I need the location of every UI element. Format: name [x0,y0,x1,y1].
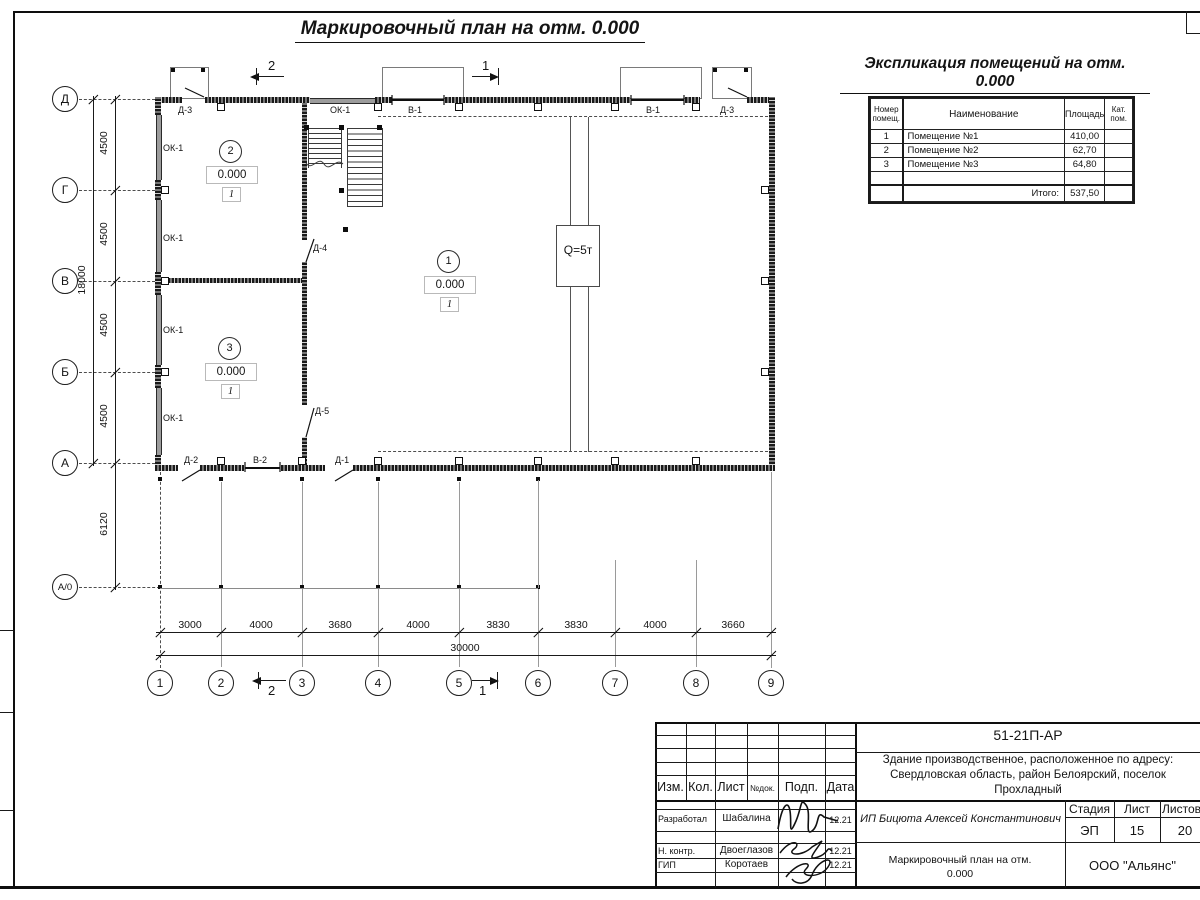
dim-line-v [115,96,116,590]
room-num: 3 [871,158,903,172]
window-label: ОК-1 [163,143,183,153]
room-area: 62,70 [1065,144,1105,158]
tb-line [655,722,657,888]
post-mark [300,477,304,481]
porch-post [201,68,205,72]
axis-circle-3: 3 [289,670,315,696]
plan-title: Маркировочный план на отм. 0.000 [270,18,670,43]
room-name: Помещение №2 [903,144,1065,158]
wall-bottom [353,465,775,471]
column-mark [343,227,348,232]
window-ok1 [156,200,162,272]
room-category-2: 1 [222,187,241,202]
sheet-label: Лист [1114,802,1160,816]
post-mark [457,477,461,481]
plan-title-text: Маркировочный план на отм. 0.000 [295,18,645,43]
dim-value: 6120 [98,502,110,546]
pilaster [611,457,619,465]
porch-post [713,68,717,72]
axis-circle-2: 2 [208,670,234,696]
client-name: ИП Бицюта Алексей Константинович [858,813,1063,825]
table-row: 1 Помещение №1 410,00 [871,130,1133,144]
stair-post [304,125,309,130]
door-label: Д-5 [315,406,329,416]
explication-title: Экспликация помещений на отм. 0.000 [840,55,1150,94]
dim-line-total-h [156,655,776,656]
signature-icon [772,833,846,887]
section-line [472,680,494,681]
frame-left-tick [0,712,13,713]
room-elevation-2: 0.000 [206,166,258,184]
signer-name: Коротаев [715,859,778,870]
axis-ext-line [771,472,772,668]
dim-value: 4000 [393,619,443,631]
col-header-area: Площадь [1065,99,1105,130]
table-row-empty [871,172,1133,185]
tb-col-list: Лист [715,780,747,794]
pilaster [534,103,542,111]
signer-name: Шабалина [715,813,778,824]
room-category-3: 1 [221,384,240,399]
tb-col-kol: Кол. [686,780,715,794]
axis-circle-8: 8 [683,670,709,696]
frame-corner-stamp [1186,11,1187,33]
section-arrow-icon [250,73,259,81]
dim-value: 4500 [98,121,110,165]
axis-line [79,587,160,588]
wall-interior-vertical [302,262,307,405]
canopy-edge [538,480,539,588]
axis-circle-a0: А/0 [52,574,78,600]
axis-circle-6: 6 [525,670,551,696]
door-label: Д-2 [184,455,198,465]
window-ok1 [156,295,162,365]
gate-v1-line [631,99,684,101]
stage-label: Стадия [1065,802,1114,816]
drawing-title: Маркировочный план на отм. 0.000 [875,853,1045,881]
axis-circle-a: А [52,450,78,476]
dim-value: 3830 [551,619,601,631]
axis-ext-line [378,482,379,667]
room-elevation-3: 0.000 [205,363,257,381]
porch-post [171,68,175,72]
dim-total: 18000 [76,258,88,302]
room-marker-2: 2 [219,140,242,163]
door-label: Д-3 [720,105,734,115]
wall-left [155,97,161,115]
sheets-value: 20 [1160,823,1200,838]
pilaster [374,457,382,465]
pilaster [611,103,619,111]
sheets-label: Листов [1162,802,1200,816]
frame-left [13,11,15,888]
post-mark [158,477,162,481]
window-ok1 [156,388,162,455]
col-header-name: Наименование [903,99,1065,130]
ramp-outline [382,67,464,99]
wall-bottom [200,465,244,471]
table-row: 3 Помещение №3 64,80 [871,158,1133,172]
wall-bottom [281,465,325,471]
dim-line-total-v [93,96,94,466]
pilaster [761,368,769,376]
tb-line [856,842,1200,843]
axis-circle-4: 4 [365,670,391,696]
room-name: Помещение №3 [903,158,1065,172]
window-label: ОК-1 [163,325,183,335]
post-mark [376,477,380,481]
dim-total: 30000 [440,642,490,654]
dim-value: 4500 [98,212,110,256]
blueprint-sheet: Маркировочный план на отм. 0.000 Эксплик… [0,0,1200,900]
room-num: 1 [871,130,903,144]
axis-circle-9: 9 [758,670,784,696]
pilaster [692,103,700,111]
frame-corner-stamp [1186,33,1200,34]
door-label: Д-3 [178,105,192,115]
axis-ext-line [615,560,616,667]
signer-name: Двоеглазов [715,845,778,856]
tb-line [655,722,1200,724]
pilaster [217,103,225,111]
stage-value: ЭП [1065,823,1114,838]
stair-flight-right [347,128,383,207]
dim-value: 4000 [236,619,286,631]
gate-v1-line [392,99,444,101]
total-value: 537,50 [1065,185,1105,202]
signer-role: ГИП [658,860,676,870]
sheet-value: 15 [1114,823,1160,838]
section-tick [497,672,498,689]
frame-left-tick [0,810,13,811]
tb-col-izm: Изм. [655,780,686,794]
crane-zone-line [378,451,768,452]
section-arrow-icon [252,677,261,685]
gate-label: В-2 [253,455,267,465]
door-swing-line [182,470,200,481]
room-marker-1: 1 [437,250,460,273]
section-tick [498,68,499,85]
axis-circle-1: 1 [147,670,173,696]
pilaster [455,457,463,465]
pilaster [374,103,382,111]
section-mark-1-top: 1 [482,58,489,73]
col-header-cat: Кат. пом. [1105,99,1133,130]
wall-interior-horizontal [161,278,302,283]
dim-value: 3830 [473,619,523,631]
crane-capacity: Q=5т [558,243,598,257]
gate-label: В-1 [646,105,660,115]
door-swing-line [335,470,353,481]
stair-post [339,125,344,130]
frame-bottom [0,886,1200,889]
dim-value: 3000 [165,619,215,631]
signer-role: Н. контр. [658,846,695,856]
window-label: ОК-1 [163,233,183,243]
total-label: Итого: [903,185,1065,202]
signer-role: Разработал [658,814,707,824]
col-header-num: Номер помещ. [871,99,903,130]
gate-label: В-1 [408,105,422,115]
dim-value: 3680 [315,619,365,631]
post-mark [219,477,223,481]
axis-circle-7: 7 [602,670,628,696]
company-name: ООО "Альянс" [1065,858,1200,873]
wall-interior-vertical [302,103,307,240]
axis-ext-line [221,482,222,667]
room-cat [1105,158,1133,172]
room-name: Помещение №1 [903,130,1065,144]
window-label: ОК-1 [163,413,183,423]
axis-ext-line [302,482,303,667]
section-mark-2-bottom: 2 [268,683,275,698]
door-swing-line [306,408,314,437]
pilaster [761,186,769,194]
axis-circle-d: Д [52,86,78,112]
project-description: Здание производственное, расположенное п… [858,753,1198,798]
axis-ext-line [696,560,697,667]
ramp-outline [620,67,702,99]
dim-value: 3660 [708,619,758,631]
door-label: Д-4 [313,243,327,253]
wall-bottom [155,465,178,471]
axis-line [160,472,161,668]
pilaster [455,103,463,111]
room-category-1: 1 [440,297,459,312]
room-marker-3: 3 [218,337,241,360]
table-row: 2 Помещение №2 62,70 [871,144,1133,158]
pilaster [761,277,769,285]
pilaster [692,457,700,465]
section-mark-1-bottom: 1 [479,683,486,698]
section-line [472,76,494,77]
dim-value: 4500 [98,394,110,438]
pilaster [534,457,542,465]
pilaster [217,457,225,465]
canopy-edge [160,588,538,589]
pilaster [161,368,169,376]
room-num: 2 [871,144,903,158]
window-label: ОК-1 [330,105,350,115]
axis-circle-b: Б [52,359,78,385]
frame-left-tick [0,630,13,631]
pilaster [298,457,306,465]
axis-circle-v: В [52,268,78,294]
axis-circle-5: 5 [446,670,472,696]
crane-zone-line [378,116,768,117]
room-elevation-1: 0.000 [424,276,476,294]
dim-value: 4000 [630,619,680,631]
section-tick [258,672,259,689]
section-tick [256,68,257,85]
pilaster [161,277,169,285]
tb-line [1065,817,1200,818]
explication-title-text: Экспликация помещений на отм. 0.000 [840,55,1150,94]
gate-v2-line [245,467,280,469]
window-ok1 [156,115,162,180]
wall-right [769,97,775,471]
axis-ext-line [459,482,460,667]
frame-top [13,11,1200,13]
dim-line-h [156,632,776,633]
window-ok1 [310,98,375,104]
porch-post [744,68,748,72]
stair-post [377,125,382,130]
section-line [256,76,284,77]
room-cat [1105,144,1133,158]
doc-number: 51-21П-АР [856,727,1200,743]
stair-flight-left [308,128,342,168]
room-cat [1105,130,1133,144]
section-line [258,680,286,681]
stair-post [339,188,344,193]
room-area: 410,00 [1065,130,1105,144]
explication-table: Номер помещ. Наименование Площадь Кат. п… [868,96,1135,204]
door-label: Д-1 [335,455,349,465]
table-row-total: Итого: 537,50 [871,185,1133,202]
pilaster [161,186,169,194]
room-area: 64,80 [1065,158,1105,172]
axis-circle-g: Г [52,177,78,203]
dim-value: 4500 [98,303,110,347]
section-mark-2-top: 2 [268,58,275,73]
